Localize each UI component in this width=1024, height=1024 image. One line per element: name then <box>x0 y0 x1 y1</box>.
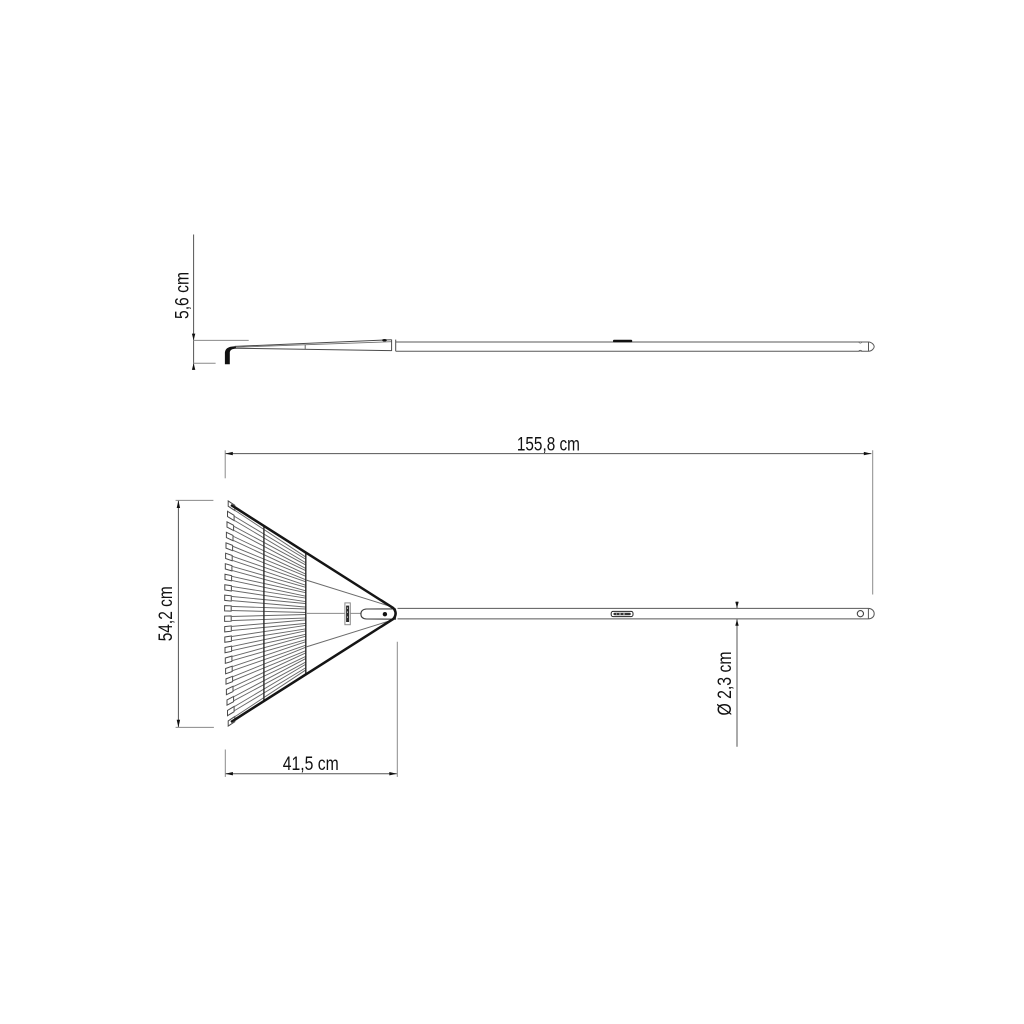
svg-text:5,6 cm: 5,6 cm <box>171 272 193 319</box>
svg-text:41,5 cm: 41,5 cm <box>283 753 339 775</box>
svg-text:155,8 cm: 155,8 cm <box>517 433 580 455</box>
svg-text:54,2 cm: 54,2 cm <box>155 586 177 641</box>
svg-text:Ø 2,3 cm: Ø 2,3 cm <box>714 652 736 716</box>
